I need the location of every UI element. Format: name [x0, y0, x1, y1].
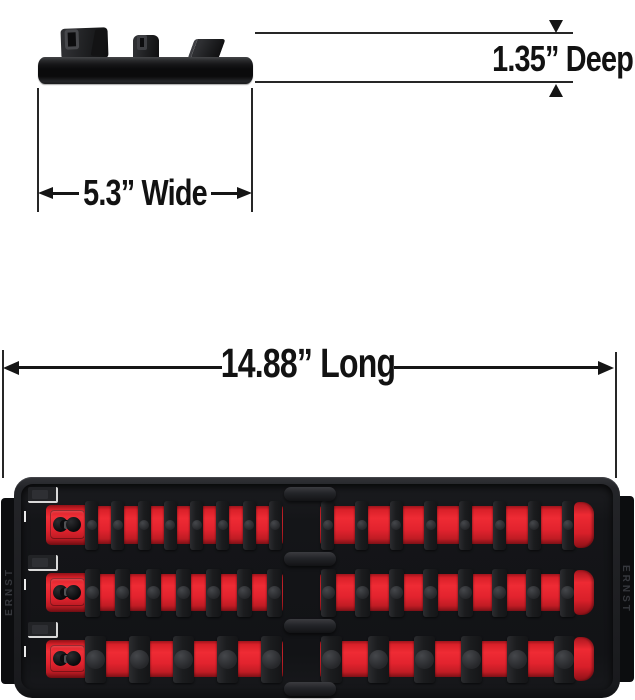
- rail-end-cap: [574, 502, 594, 548]
- highlight-tick: [24, 646, 26, 657]
- socket-rail-strip: [84, 506, 283, 544]
- rail-keyhole-bracket: [46, 640, 87, 678]
- socket-peg: [86, 586, 99, 599]
- socket-clip: [85, 569, 100, 617]
- socket-clip: [492, 569, 507, 617]
- center-connector: [284, 552, 336, 566]
- socket-clip: [243, 501, 256, 550]
- socket-peg: [356, 586, 369, 599]
- socket-peg: [174, 650, 193, 669]
- socket-peg: [390, 586, 403, 599]
- socket-clip: [261, 636, 282, 683]
- rail-end-mount: [28, 622, 58, 638]
- socket-clip: [217, 636, 238, 683]
- wide-dimension-label: 5.3” Wide: [65, 175, 225, 211]
- socket-clip: [526, 569, 541, 617]
- rail-side-profile-bar: [38, 57, 253, 84]
- socket-clip: [493, 501, 506, 550]
- end-mount-detail: [32, 490, 48, 499]
- socket-peg: [462, 650, 481, 669]
- socket-clip: [459, 501, 472, 550]
- rail-clip-profile-middle: [133, 35, 159, 59]
- socket-rail-strip: [84, 641, 283, 677]
- socket-organizer-dimension-diagram: 1.35” Deep 5.3” Wide 14.88” Long ERNST E…: [0, 0, 635, 700]
- keyhole-plate: [50, 578, 85, 606]
- deep-extension-line-bottom: [255, 81, 573, 83]
- rail-end-mount: [28, 555, 58, 571]
- socket-peg: [495, 520, 505, 530]
- socket-peg: [460, 520, 470, 530]
- socket-peg: [147, 586, 160, 599]
- clip-side-face: [91, 29, 108, 56]
- socket-clip: [355, 569, 370, 617]
- socket-peg: [426, 520, 436, 530]
- socket-clip: [424, 501, 437, 550]
- socket-clip: [190, 501, 203, 550]
- socket-peg: [218, 650, 237, 669]
- socket-clip: [389, 569, 404, 617]
- socket-peg: [177, 586, 190, 599]
- socket-peg: [270, 520, 280, 530]
- socket-rail-strip: [320, 641, 576, 677]
- socket-peg: [415, 650, 434, 669]
- center-connector: [284, 487, 336, 501]
- center-connector: [284, 619, 336, 633]
- highlight-tick: [24, 511, 26, 522]
- keyhole-hole-right: [66, 585, 81, 600]
- socket-clip: [146, 569, 161, 617]
- socket-clip: [206, 569, 221, 617]
- socket-peg: [391, 520, 401, 530]
- socket-clip: [216, 501, 229, 550]
- socket-clip: [267, 569, 282, 617]
- rail-end-cap: [574, 570, 594, 615]
- clip-slot: [64, 29, 79, 49]
- socket-clip: [560, 569, 575, 617]
- socket-peg: [139, 520, 149, 530]
- socket-clip: [321, 501, 334, 550]
- socket-peg: [322, 586, 335, 599]
- socket-clip: [321, 569, 336, 617]
- arrow-right-icon: [237, 187, 252, 199]
- socket-rail-strip: [320, 574, 576, 611]
- socket-clip: [164, 501, 177, 550]
- deep-extension-line-top: [255, 32, 573, 34]
- arrow-up-icon: [549, 84, 563, 97]
- socket-peg: [357, 520, 367, 530]
- socket-peg: [561, 586, 574, 599]
- socket-peg: [207, 586, 220, 599]
- socket-clip: [115, 569, 130, 617]
- socket-rail-strip: [84, 574, 283, 611]
- socket-peg: [508, 650, 527, 669]
- rail-keyhole-bracket: [46, 573, 87, 612]
- socket-clip: [458, 569, 473, 617]
- arrow-down-icon: [549, 20, 563, 33]
- long-extension-line-right: [615, 352, 617, 478]
- socket-clip: [237, 569, 252, 617]
- long-dimension-label: 14.88” Long: [218, 343, 397, 384]
- rail-keyhole-bracket: [46, 505, 87, 545]
- rail-end-mount: [28, 487, 58, 503]
- center-connector: [284, 682, 336, 696]
- end-mount-detail: [32, 625, 48, 634]
- socket-clip: [269, 501, 282, 550]
- socket-peg: [116, 586, 129, 599]
- socket-peg: [555, 650, 574, 669]
- socket-peg: [238, 586, 251, 599]
- socket-peg: [424, 586, 437, 599]
- socket-peg: [322, 650, 341, 669]
- socket-peg: [369, 650, 388, 669]
- keyhole-hole-right: [66, 651, 81, 666]
- socket-clip: [414, 636, 435, 683]
- socket-clip: [355, 501, 368, 550]
- socket-peg: [86, 650, 105, 669]
- socket-peg: [459, 586, 472, 599]
- socket-peg: [527, 586, 540, 599]
- socket-peg: [192, 520, 202, 530]
- socket-clip: [461, 636, 482, 683]
- socket-peg: [493, 586, 506, 599]
- socket-clip: [562, 501, 575, 550]
- socket-clip: [129, 636, 150, 683]
- socket-peg: [262, 650, 281, 669]
- socket-peg: [130, 650, 149, 669]
- socket-clip: [507, 636, 528, 683]
- deep-dimension-label: 1.35” Deep: [441, 41, 633, 77]
- rail-clip-profile-right: [187, 39, 225, 59]
- socket-clip: [423, 569, 438, 617]
- socket-peg: [268, 586, 281, 599]
- rail-clip-profile-left: [60, 27, 108, 60]
- socket-clip: [321, 636, 342, 683]
- long-dimension-line: [394, 366, 599, 369]
- socket-peg: [323, 520, 333, 530]
- keyhole-hole-right: [66, 517, 81, 532]
- keyhole-plate: [50, 510, 85, 539]
- socket-rail-strip: [320, 506, 576, 544]
- socket-clip: [85, 636, 106, 683]
- socket-clip: [85, 501, 98, 550]
- socket-clip: [390, 501, 403, 550]
- arrow-right-icon: [598, 361, 614, 375]
- socket-clip: [176, 569, 191, 617]
- socket-peg: [87, 520, 97, 530]
- socket-clip: [368, 636, 389, 683]
- socket-clip: [528, 501, 541, 550]
- keyhole-plate: [50, 645, 85, 672]
- socket-clip: [138, 501, 151, 550]
- socket-clip: [554, 636, 575, 683]
- socket-peg: [113, 520, 123, 530]
- long-dimension-line: [17, 366, 222, 369]
- socket-clip: [173, 636, 194, 683]
- socket-peg: [218, 520, 228, 530]
- socket-peg: [529, 520, 539, 530]
- socket-peg: [563, 520, 573, 530]
- clip-slot: [137, 35, 147, 50]
- highlight-tick: [24, 579, 26, 590]
- end-mount-detail: [32, 558, 48, 567]
- socket-clip: [111, 501, 124, 550]
- wide-dimension-line: [211, 192, 238, 195]
- brand-text-right: ERNST: [620, 565, 631, 614]
- rail-end-cap: [574, 637, 594, 681]
- socket-peg: [244, 520, 254, 530]
- socket-peg: [165, 520, 175, 530]
